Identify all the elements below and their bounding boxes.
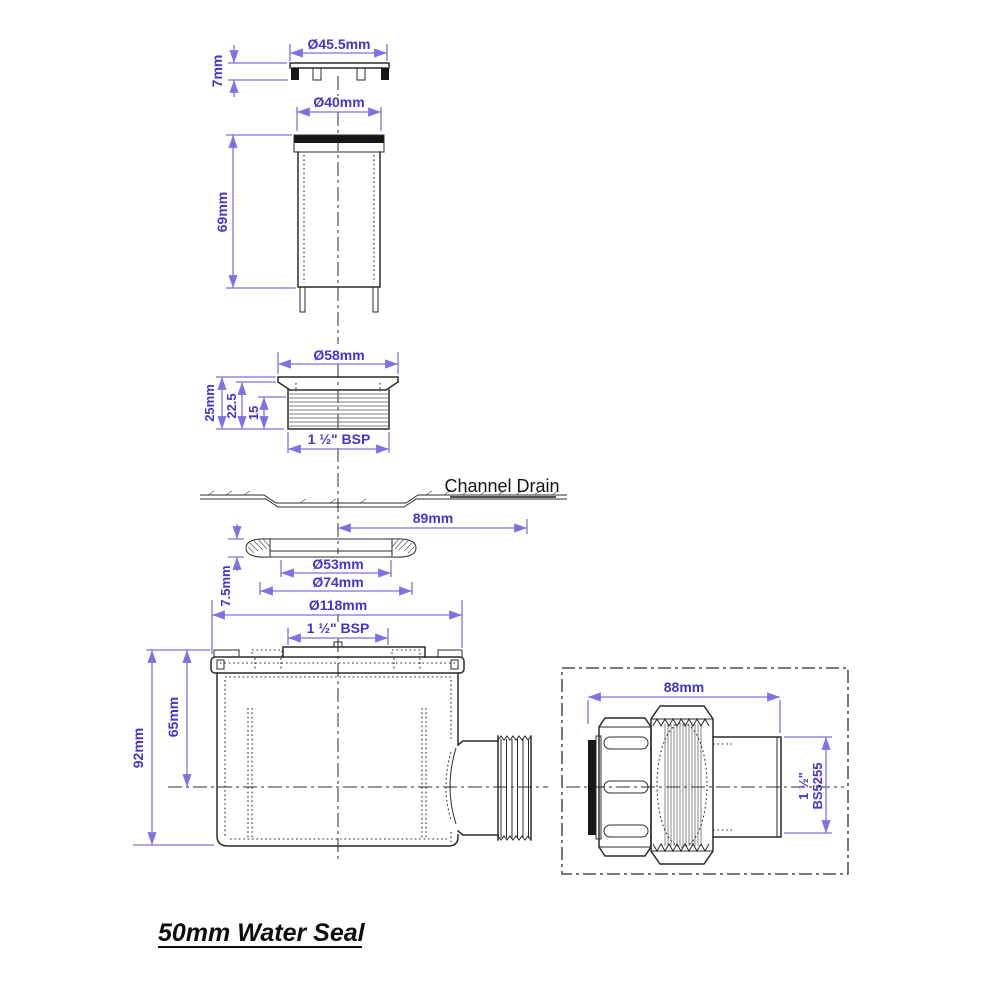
- dim-tube-diameter: Ø40mm: [297, 94, 381, 131]
- dim-drain-offset: 89mm: [338, 510, 527, 534]
- dim-fitting-pipe-size: 1 ½" BS5255: [784, 737, 832, 833]
- seal-washer: [246, 539, 416, 557]
- drawing-title-text: 50mm Water Seal: [158, 919, 366, 947]
- body-thread-spec-label: 1 ½" BSP: [307, 620, 370, 636]
- fitting-length-label: 88mm: [664, 679, 704, 695]
- dim-seal-height: 7.5mm: [218, 524, 244, 607]
- dim-grate-height: 7mm: [209, 45, 288, 97]
- dim-tube-height: 69mm: [214, 135, 296, 288]
- dim-grate-diameter: Ø45.5mm: [290, 36, 387, 61]
- drawing-title: 50mm Water Seal: [158, 919, 366, 947]
- tube-height-label: 69mm: [214, 192, 230, 232]
- fitting-pipe-standard-label: BS5255: [810, 763, 825, 810]
- adapter-overall-height-label: 25mm: [202, 384, 217, 422]
- drain-tube: [294, 135, 384, 312]
- adapter-thread-length-label: 15: [246, 406, 261, 420]
- trap-body: [211, 642, 531, 846]
- technical-drawing: Ø45.5mm 7mm Ø40mm 69mm Ø58mm: [0, 0, 1000, 1000]
- seal-inner-label: Ø53mm: [312, 556, 363, 572]
- fitting-pipe-size-label: 1 ½": [796, 772, 811, 800]
- grate-diameter-label: Ø45.5mm: [307, 36, 370, 52]
- adapter-mid-height-label: 22.5: [224, 393, 239, 418]
- adapter-diameter-label: Ø58mm: [313, 347, 364, 363]
- body-diameter-label: Ø118mm: [309, 597, 367, 613]
- outlet-union-fitting: [562, 668, 848, 874]
- dim-adapter-heights: 25mm 22.5 15: [202, 377, 286, 429]
- dim-seal-outer: Ø74mm: [260, 574, 412, 595]
- fitting-boundary-box: [562, 668, 848, 874]
- drain-offset-label: 89mm: [413, 510, 453, 526]
- tube-diameter-label: Ø40mm: [313, 94, 364, 110]
- seal-outer-label: Ø74mm: [312, 574, 363, 590]
- channel-drain-plate: Channel Drain: [200, 476, 567, 507]
- channel-drain-label: Channel Drain: [444, 476, 559, 496]
- adapter-thread-spec-label: 1 ½" BSP: [308, 431, 371, 447]
- dim-body-depth: 65mm: [165, 650, 187, 787]
- grate-height-label: 7mm: [209, 55, 225, 88]
- body-height-label: 92mm: [130, 728, 146, 768]
- grate-top-cap: [290, 63, 389, 80]
- drawing-canvas: Ø45.5mm 7mm Ø40mm 69mm Ø58mm: [0, 0, 1000, 1000]
- body-depth-label: 65mm: [165, 697, 181, 737]
- seal-height-label: 7.5mm: [218, 565, 233, 606]
- dim-body-height: 92mm: [130, 650, 214, 845]
